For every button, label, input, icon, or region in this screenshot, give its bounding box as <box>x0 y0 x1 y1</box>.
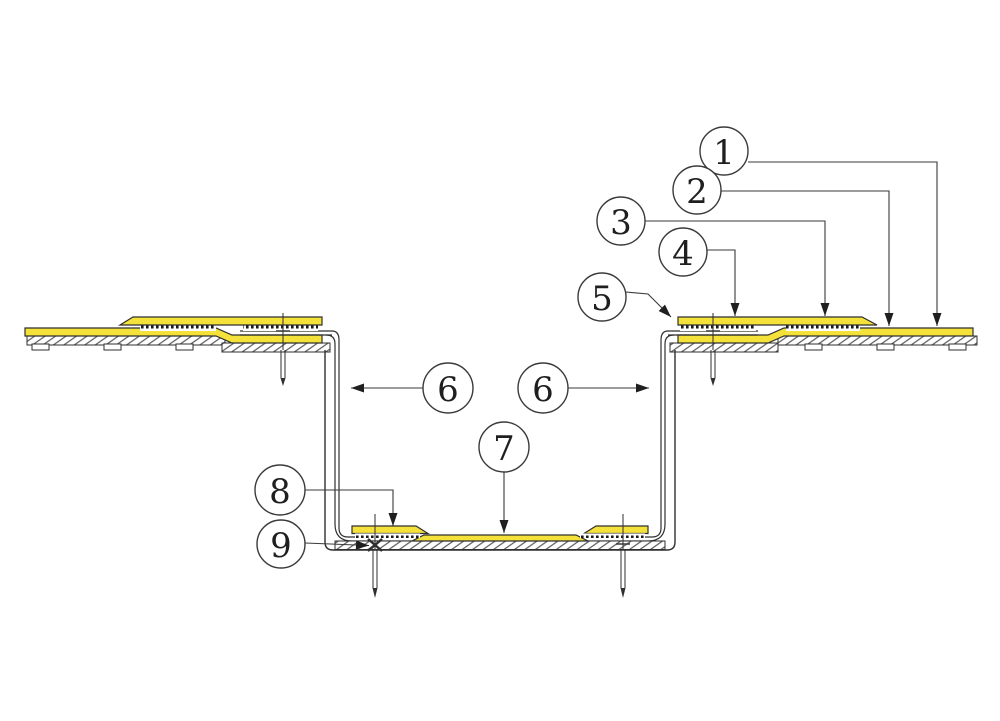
steel-deck-right-inner <box>670 343 778 352</box>
callout-5: 5 <box>578 273 626 321</box>
callout-2-label: 2 <box>686 172 708 212</box>
callout-3: 3 <box>597 197 645 245</box>
left-roof-buildup <box>25 313 332 386</box>
weld-seam-right-inner <box>680 326 756 332</box>
weld-seam-right-outer <box>786 326 860 332</box>
callout-5-label: 5 <box>591 279 613 319</box>
technical-drawing-canvas: 1 2 3 4 5 6 6 7 <box>0 0 1000 721</box>
callout-8-label: 8 <box>269 472 291 512</box>
callout-1-label: 1 <box>713 133 735 173</box>
gutter-detail-drawing: 1 2 3 4 5 6 6 7 <box>0 0 1000 721</box>
weld-seam-left-inner <box>243 326 318 332</box>
leader-4 <box>706 250 735 316</box>
leader-1 <box>748 162 937 326</box>
gutter-bottom-membrane <box>412 535 588 541</box>
callout-6-left-label: 6 <box>437 370 459 410</box>
callout-8: 8 <box>255 465 305 515</box>
callout-7-label: 7 <box>493 429 515 469</box>
steel-deck-left-inner <box>222 343 330 352</box>
flashing-strip-right <box>678 317 877 325</box>
right-roof-buildup <box>668 313 977 386</box>
callout-9: 9 <box>257 520 305 568</box>
gutter-bottom-deck <box>335 541 665 550</box>
steel-deck-left-outer <box>27 336 225 345</box>
callout-3-label: 3 <box>610 203 632 243</box>
weld-seam-left-outer <box>140 326 216 332</box>
weld-seam-bottom-right <box>580 534 645 539</box>
gutter-bottom-strip-left <box>352 526 428 534</box>
callout-4: 4 <box>659 228 707 276</box>
callout-6-right-label: 6 <box>532 370 554 410</box>
callout-4-label: 4 <box>672 234 694 274</box>
callout-7: 7 <box>479 422 529 472</box>
callout-6-right: 6 <box>518 363 568 413</box>
leader-2 <box>721 191 889 326</box>
leader-5 <box>626 292 671 317</box>
flashing-strip-left <box>120 317 322 325</box>
leader-8 <box>305 490 393 526</box>
callout-6-left: 6 <box>423 363 473 413</box>
gutter-bottom-strip-right <box>584 526 648 534</box>
weld-seam-bottom-left <box>355 534 420 539</box>
callout-9-label: 9 <box>270 526 292 566</box>
callout-2: 2 <box>673 166 721 214</box>
